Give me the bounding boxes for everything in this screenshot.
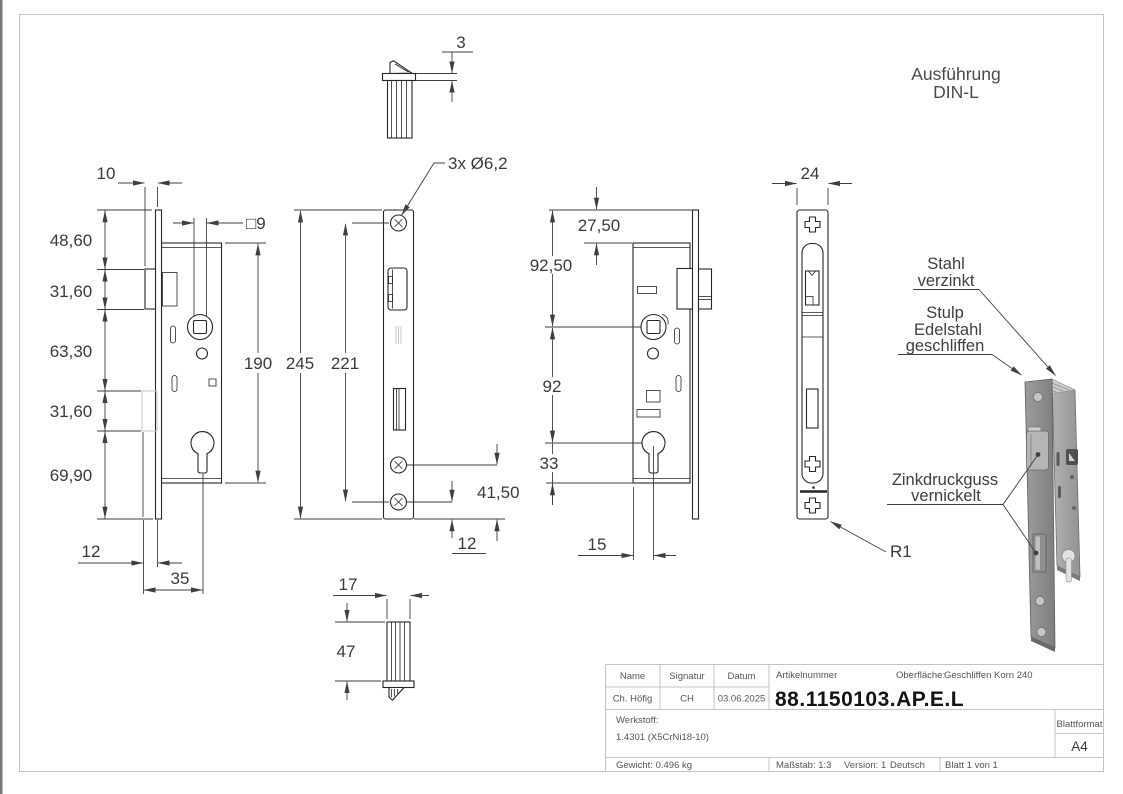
screw-hole xyxy=(391,494,407,510)
view-lock-side xyxy=(142,210,222,519)
dim-92-50: 92,50 xyxy=(530,256,573,275)
value-massstab: Maßstab: 1:3 xyxy=(776,760,831,771)
value-blatt: Blatt 1 von 1 xyxy=(945,760,998,771)
label-oberflaeche: Oberfläche: xyxy=(896,670,945,681)
label-werkstoff: Werkstoff: xyxy=(616,715,658,726)
value-artikelnummer: 88.1150103.AP.E.L xyxy=(775,688,964,711)
value-oberflaeche: Geschliffen Korn 240 xyxy=(944,670,1033,681)
dim-47: 47 xyxy=(337,642,356,661)
drawing-page: 48,60 31,60 63,30 31,60 69,90 10 □9 190 … xyxy=(0,0,1123,794)
dim-10: 10 xyxy=(97,164,116,183)
dim-35: 35 xyxy=(171,569,190,588)
value-name: Ch. Höfig xyxy=(613,694,653,705)
latch-bolt xyxy=(699,269,712,309)
label-blattformat: Blattformat xyxy=(1057,719,1103,730)
execution-note: Ausführung DIN-L xyxy=(911,64,1001,102)
execution-line1: Ausführung xyxy=(911,64,1001,84)
latch-bolt-3d xyxy=(1027,431,1049,470)
dim-41-50: 41,50 xyxy=(477,483,520,502)
screw-head xyxy=(1034,393,1043,402)
callout-stahl-line2: verzinkt xyxy=(918,272,975,290)
callout-zink-line2: vernickelt xyxy=(911,487,981,505)
stulp-edge xyxy=(156,210,162,519)
value-werkstoff: 1.4301 (X5CrNi18-10) xyxy=(616,732,709,743)
dim-31-60-b: 31,60 xyxy=(50,402,93,421)
callout-stulp-line3: geschliffen xyxy=(906,337,985,355)
value-signatur: CH xyxy=(680,694,694,705)
callout-stulp-line1: Stulp xyxy=(926,304,964,322)
dim-27-50: 27,50 xyxy=(578,216,621,235)
view-lock-case xyxy=(633,210,712,519)
screw-hole xyxy=(391,457,407,473)
view-stulp-front: 24 R1 xyxy=(772,164,912,561)
title-block: Name Signatur Datum Ch. Höfig CH 03.06.2… xyxy=(606,665,1105,772)
view-faceplate-front: 3 xyxy=(383,33,474,700)
screw-head xyxy=(1036,597,1045,606)
dim-radius-r1: R1 xyxy=(890,542,912,561)
dim-24: 24 xyxy=(801,164,820,183)
value-datum: 03.06.2025 xyxy=(718,694,766,705)
callout-holes: 3x Ø6,2 xyxy=(448,154,508,173)
drawing-canvas: 48,60 31,60 63,30 31,60 69,90 10 □9 190 … xyxy=(0,0,1123,794)
dim-190: 190 xyxy=(244,354,272,373)
latch-bolt xyxy=(145,269,156,309)
isometric-view xyxy=(1025,379,1080,652)
follower-hole xyxy=(641,315,666,340)
dim-69-90: 69,90 xyxy=(50,466,93,485)
dim-221: 221 xyxy=(331,354,359,373)
callout-stahl-line1: Stahl xyxy=(927,255,965,273)
col-name: Name xyxy=(620,671,645,682)
dim-33: 33 xyxy=(540,454,559,473)
page-left-edge xyxy=(0,0,3,794)
stulp-edge xyxy=(693,210,699,519)
col-datum: Datum xyxy=(728,671,756,682)
value-gewicht: Gewicht: 0.496 kg xyxy=(616,760,692,771)
screw-hole xyxy=(391,215,407,231)
screw-head xyxy=(1037,628,1046,637)
dim-31-60-a: 31,60 xyxy=(50,282,93,301)
value-sprache: Deutsch xyxy=(890,760,925,771)
execution-line2: DIN-L xyxy=(933,82,979,102)
dim-3: 3 xyxy=(456,33,465,52)
col-signatur: Signatur xyxy=(669,671,704,682)
dim-15: 15 xyxy=(588,535,607,554)
dim-12-side: 12 xyxy=(82,542,101,561)
dim-63-30: 63,30 xyxy=(50,342,93,361)
dim-17: 17 xyxy=(339,575,358,594)
dim-245: 245 xyxy=(286,354,314,373)
dim-12-faceplate: 12 xyxy=(458,534,477,553)
follower-hole xyxy=(188,315,213,340)
dim-48-60: 48,60 xyxy=(50,231,93,250)
value-version: Version: 1 xyxy=(844,760,886,771)
dim-92: 92 xyxy=(543,377,562,396)
value-blattformat: A4 xyxy=(1071,739,1088,754)
label-artikelnummer: Artikelnummer xyxy=(776,670,837,681)
dim-square-9: □9 xyxy=(246,214,266,233)
